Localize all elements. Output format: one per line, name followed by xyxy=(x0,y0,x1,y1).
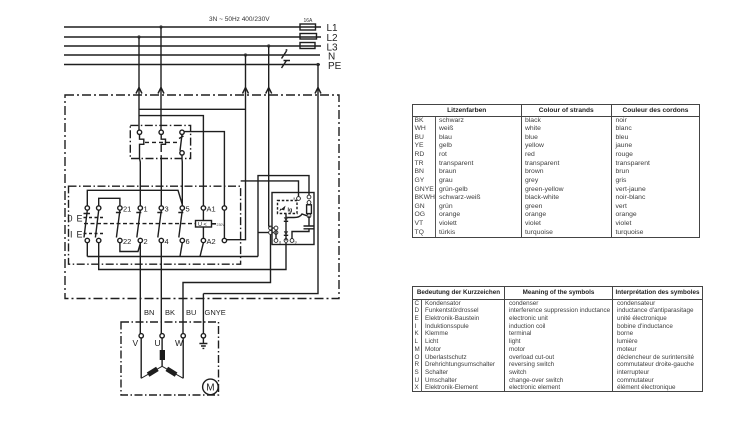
svg-text:21: 21 xyxy=(123,205,131,214)
svg-text:U: U xyxy=(155,338,161,348)
svg-text:E: E xyxy=(77,214,83,224)
svg-text:Ig: Ig xyxy=(288,208,293,214)
svg-text:E: E xyxy=(77,230,83,240)
svg-text:16A: 16A xyxy=(304,18,314,24)
svg-text:6: 6 xyxy=(186,237,190,246)
svg-text:8: 8 xyxy=(279,240,282,245)
svg-text:3: 3 xyxy=(165,205,169,214)
svg-text:GNYE: GNYE xyxy=(205,308,226,317)
svg-text:V: V xyxy=(133,338,139,348)
svg-text:22: 22 xyxy=(123,237,131,246)
svg-text:PE: PE xyxy=(328,61,342,72)
svg-text:3N ~ 50Hz 400/230V: 3N ~ 50Hz 400/230V xyxy=(209,16,270,23)
svg-text:0: 0 xyxy=(68,214,73,224)
svg-text:U <: U < xyxy=(198,222,207,228)
svg-text:1: 1 xyxy=(144,205,148,214)
svg-text:4: 4 xyxy=(165,237,169,246)
svg-text:BN: BN xyxy=(144,308,154,317)
svg-text:A2: A2 xyxy=(207,237,216,246)
svg-text:M: M xyxy=(206,383,214,394)
svg-text:BU: BU xyxy=(186,308,196,317)
svg-text:BK: BK xyxy=(165,308,175,317)
svg-text:9: 9 xyxy=(295,240,298,245)
svg-text:5: 5 xyxy=(186,205,190,214)
svg-text:I: I xyxy=(70,230,73,240)
svg-text:A1: A1 xyxy=(207,205,216,214)
svg-text:a: a xyxy=(293,196,296,201)
svg-text:W: W xyxy=(175,338,183,348)
svg-text:2: 2 xyxy=(144,237,148,246)
